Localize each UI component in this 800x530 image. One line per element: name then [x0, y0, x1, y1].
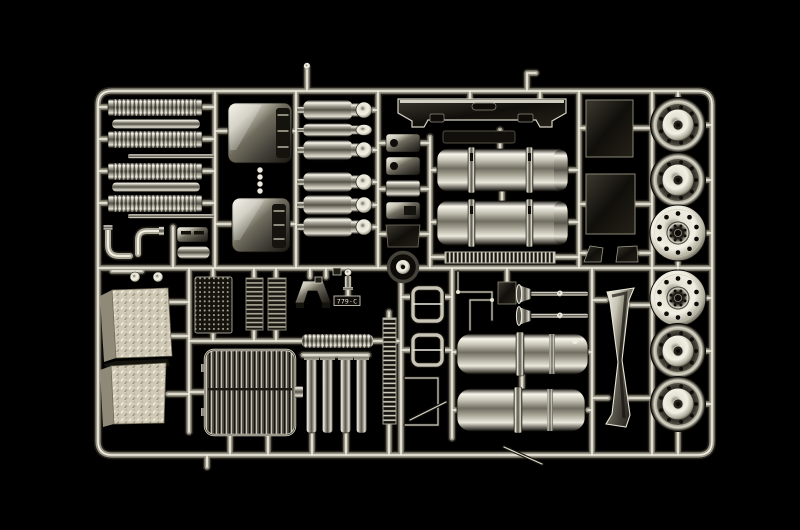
mesh-screen-panel: [195, 277, 232, 333]
photo-stage: 779·C: [0, 0, 800, 530]
sprue-code-plate: 779·C: [334, 296, 360, 306]
position-tag-1: [333, 268, 341, 275]
wheel-rim-2: [651, 153, 706, 208]
position-tag-2: [315, 277, 322, 283]
mounting-bracket-4: [386, 202, 420, 219]
air-tank-2: [297, 123, 372, 137]
slatted-vent-panel-2: [268, 278, 286, 330]
tread-step-plate-2: [111, 363, 166, 424]
grille-side-tab: [295, 386, 303, 398]
ribbed-channel-strip: [383, 318, 396, 424]
tread-catwalk-strip: [445, 252, 555, 263]
storage-box-lid: [177, 246, 210, 259]
mud-flap: [386, 225, 420, 247]
stack-tube-4: [356, 358, 367, 433]
mounting-bracket-3: [386, 180, 420, 197]
mounting-bracket-2: [386, 157, 420, 175]
mounting-strip-1: [128, 154, 214, 159]
fuel-tank-panel-lower: [232, 198, 290, 252]
fuel-tank-1: [437, 147, 568, 193]
stack-tube-1: [306, 358, 317, 433]
ribbed-silencer-2: [108, 131, 202, 148]
air-tank-3: [297, 140, 372, 160]
muffler-tube-2: [112, 182, 200, 192]
battery-box-lid: [177, 227, 208, 242]
fuel-tank-panel-upper: [228, 103, 292, 163]
fuel-tank-2: [437, 199, 568, 247]
tank-mounting-panel-1: [586, 100, 633, 157]
ribbed-silencer-3: [108, 163, 202, 180]
mounting-strip-2: [128, 214, 214, 219]
stack-tube-3: [340, 358, 351, 433]
air-tank-5: [297, 195, 372, 215]
wheel-hub-disc-2: [650, 270, 706, 326]
bracket-column: [386, 134, 420, 247]
wheel-rim-3: [651, 324, 706, 379]
sprue-gate-ball: [304, 63, 310, 69]
mounting-bracket-1: [386, 134, 420, 152]
wheel-rim-4: [651, 377, 706, 432]
air-tank-1: [297, 100, 372, 120]
wheel-hub-disc-1: [650, 205, 706, 261]
stack-tube-2: [322, 358, 333, 433]
wheel-rim-1: [651, 98, 706, 153]
chrome-sprue-photo: 779·C: [0, 0, 800, 530]
tank-mounting-panel-2: [586, 174, 635, 234]
air-tank-4: [297, 172, 372, 192]
tread-step-plate-1: [112, 288, 172, 358]
radiator-grille: [201, 350, 303, 435]
slatted-vent-panel-1: [246, 278, 263, 330]
air-tank-6: [297, 217, 372, 237]
sprue-code-label: 779·C: [337, 297, 358, 305]
ribbed-silencer-1: [108, 99, 202, 116]
spare-pulley-wheel: [389, 253, 418, 282]
muffler-tube-1: [112, 119, 200, 129]
license-plate-holder: [443, 131, 515, 143]
ribbed-silencer-bottom: [302, 334, 373, 348]
large-air-tank-1: [457, 332, 588, 376]
junction-box: [498, 282, 516, 304]
corner-bracket-2: [616, 246, 638, 262]
large-air-tank-2: [457, 387, 585, 433]
ribbed-silencer-4: [108, 195, 202, 212]
